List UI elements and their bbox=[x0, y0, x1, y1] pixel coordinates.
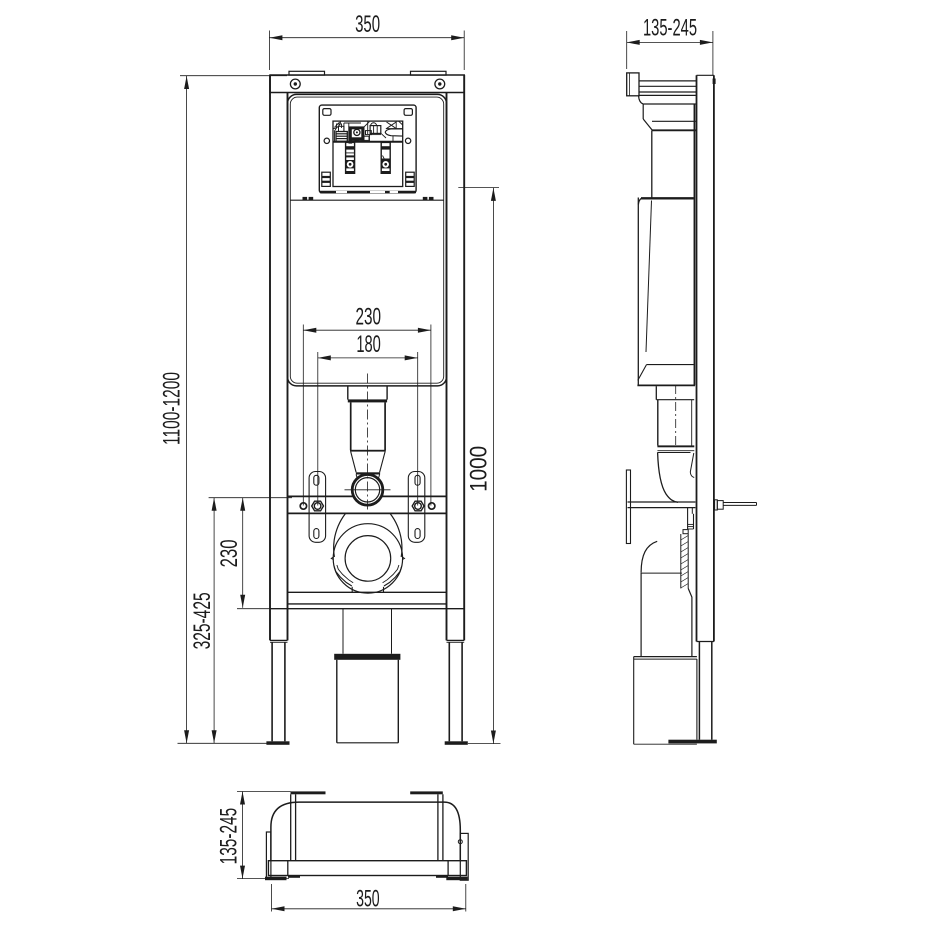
svg-text:180: 180 bbox=[356, 331, 381, 358]
svg-text:135-245: 135-245 bbox=[216, 808, 243, 865]
svg-text:350: 350 bbox=[356, 885, 380, 912]
svg-text:350: 350 bbox=[355, 11, 380, 38]
svg-text:325-425: 325-425 bbox=[189, 592, 216, 649]
svg-text:1000: 1000 bbox=[466, 446, 493, 492]
svg-text:230: 230 bbox=[355, 303, 381, 330]
svg-text:230: 230 bbox=[216, 539, 243, 567]
svg-text:1100-1200: 1100-1200 bbox=[158, 372, 185, 445]
svg-text:135-245: 135-245 bbox=[643, 15, 697, 42]
